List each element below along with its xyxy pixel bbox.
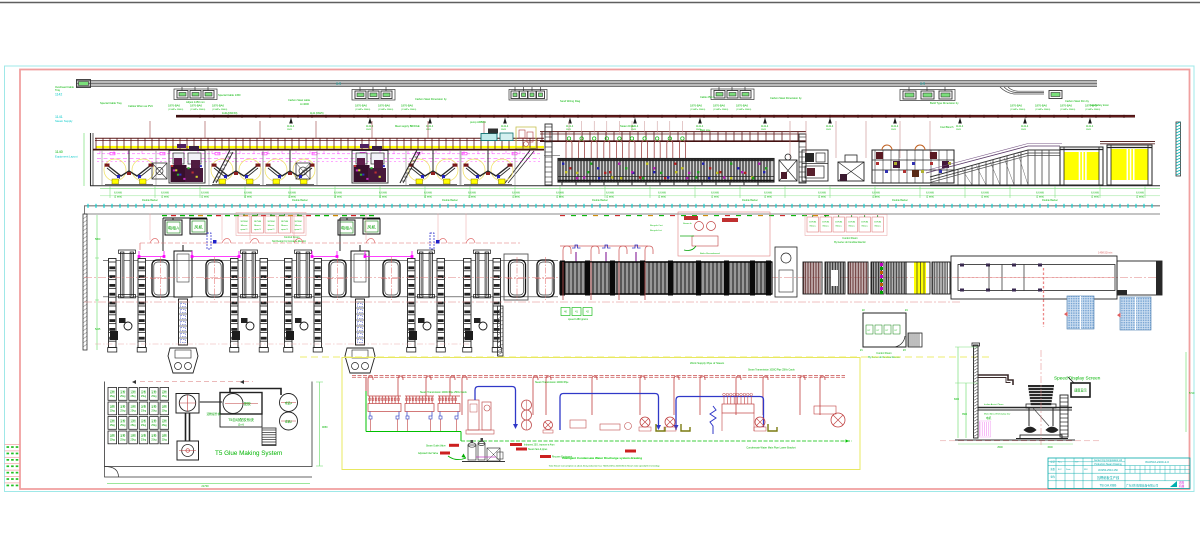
svg-text:(1.5MPa DN40): (1.5MPa DN40) [168, 109, 183, 111]
svg-text:1142: 1142 [336, 83, 342, 86]
svg-text:25kg: 25kg [162, 395, 168, 398]
svg-text:6.6 kW: 6.6 kW [379, 192, 387, 195]
svg-text:淀粉: 淀粉 [131, 434, 137, 438]
svg-text:1141-4: 1141-4 [1021, 125, 1029, 128]
svg-text:(2 sets): (2 sets) [818, 196, 826, 199]
svg-text:5245: 5245 [95, 328, 101, 331]
svg-text:Indepent 25G, improve a 4ton: Indepent 25G, improve a 4ton [524, 444, 555, 447]
svg-text:DN25: DN25 [1086, 129, 1092, 131]
svg-text:Condensate Water Main Pipe Low: Condensate Water Main Pipe Lower Bracket [746, 447, 796, 450]
svg-text:淀粉: 淀粉 [131, 419, 137, 423]
svg-text:25kg: 25kg [151, 424, 157, 427]
svg-text:Double Backer: Double Backer [142, 199, 158, 202]
svg-text:2500: 2500 [997, 446, 1003, 449]
svg-text:9050: 9050 [322, 426, 328, 429]
svg-text:By Gertec do Condtrac Electric: By Gertec do Condtrac Electric [834, 241, 866, 244]
svg-text:spau##: spau## [240, 229, 248, 231]
svg-text:Double Backer: Double Backer [742, 199, 758, 202]
svg-text:Intelligent Condensate Water D: Intelligent Condensate Water Discharge s… [562, 456, 642, 460]
svg-text:1141-4: 1141-4 [696, 125, 704, 128]
svg-text:187584: 187584 [835, 222, 843, 224]
svg-text:Total Steam Consumption at abo: Total Steam Consumption at about 4ton,pr… [549, 464, 660, 467]
svg-text:淀粉: 淀粉 [120, 405, 126, 409]
svg-text:25kg: 25kg [131, 424, 137, 427]
svg-text:1141-4: 1141-4 [366, 125, 374, 128]
svg-text:1876-BA6: 1876-BA6 [168, 104, 180, 108]
svg-text:6.6 kW: 6.6 kW [1091, 192, 1099, 195]
svg-text:187584: 187584 [281, 221, 289, 223]
svg-text:Control Room: Control Room [842, 237, 857, 240]
svg-text:6.6 kW: 6.6 kW [288, 192, 296, 195]
svg-text:Carbon Steel Dim by: Carbon Steel Dim by [1065, 99, 1090, 103]
svg-text:1876-BA6: 1876-BA6 [355, 104, 367, 108]
svg-text:6.6 kW: 6.6 kW [201, 192, 209, 195]
svg-text:W.F: W.F [1084, 469, 1089, 471]
svg-text:淀粉: 淀粉 [141, 434, 147, 438]
svg-text:Cable 250 m: Cable 250 m [700, 95, 715, 99]
svg-text:Double Backer: Double Backer [442, 199, 458, 202]
svg-text:淀粉: 淀粉 [162, 390, 168, 394]
svg-text:Recycle List: Recycle List [650, 229, 662, 232]
svg-text:6.6 kW: 6.6 kW [764, 192, 772, 195]
svg-text:At 4000: At 4000 [300, 102, 309, 106]
svg-text:Production Steam Drawing: Production Steam Drawing [1094, 463, 1122, 466]
svg-text:淀粉: 淀粉 [141, 405, 147, 409]
svg-text:1141-4: 1141-4 [426, 125, 434, 128]
svg-text:Double Backer: Double Backer [892, 199, 908, 202]
svg-text:187584: 187584 [294, 221, 302, 223]
svg-text:6.6 kW: 6.6 kW [556, 192, 564, 195]
svg-text:Steam In: Steam In [683, 222, 693, 225]
svg-text:(1.5MPa DN40): (1.5MPa DN40) [1010, 109, 1025, 111]
svg-text:1876-BA6: 1876-BA6 [401, 104, 413, 108]
svg-text:(2 sets): (2 sets) [201, 196, 209, 199]
svg-text:Moscu: Moscu [295, 225, 302, 227]
svg-text:1876-BA6: 1876-BA6 [190, 104, 202, 108]
svg-text:1876-BA6: 1876-BA6 [690, 104, 702, 108]
svg-text:1141-4: 1141-4 [891, 125, 899, 128]
svg-text:Cool Bench: Cool Bench [940, 125, 954, 129]
svg-text:25kg: 25kg [131, 410, 137, 413]
svg-text:淀粉: 淀粉 [110, 419, 116, 423]
svg-text:电柜A: 电柜A [341, 225, 352, 232]
svg-text:25kg: 25kg [141, 424, 147, 427]
svg-text:Control Room: Control Room [876, 352, 891, 355]
svg-text:Motor Area Working/up low: Motor Area Working/up low [984, 413, 1011, 416]
svg-text:1498.52/min: 1498.52/min [1098, 251, 1113, 255]
svg-text:(2 sets): (2 sets) [1091, 196, 1099, 199]
svg-text:1876-BA6: 1876-BA6 [1085, 104, 1097, 108]
svg-text:(1.5MPa DN40): (1.5MPa DN40) [212, 109, 227, 111]
svg-text:1876-BA6: 1876-BA6 [736, 104, 748, 108]
svg-text:6.6 kW: 6.6 kW [424, 192, 432, 195]
svg-text:Double Backer: Double Backer [1042, 199, 1058, 202]
svg-text:(1.5MPa DN40): (1.5MPa DN40) [713, 109, 728, 111]
svg-text:Gertec City Corporation Ltd: Gertec City Corporation Ltd [1094, 459, 1123, 462]
svg-text:Special Cable 1450: Special Cable 1450 [218, 93, 241, 97]
svg-text:25kg: 25kg [131, 439, 137, 442]
svg-text:6.6 kW: 6.6 kW [658, 192, 666, 195]
svg-text:Build Type Dimension by: Build Type Dimension by [930, 101, 959, 105]
svg-text:1500: 1500 [1047, 446, 1053, 449]
svg-text:25kg: 25kg [120, 410, 126, 413]
svg-text:3500: 3500 [962, 414, 968, 416]
svg-text:Moscu: Moscu [810, 226, 817, 228]
svg-text:(2 sets): (2 sets) [512, 196, 520, 199]
svg-text:25kg: 25kg [151, 395, 157, 398]
svg-text:(1.5MPa DN40): (1.5MPa DN40) [736, 109, 751, 111]
svg-text:21700: 21700 [201, 484, 209, 488]
svg-text:6.6 kW: 6.6 kW [1136, 192, 1144, 195]
svg-text:(2 sets): (2 sets) [334, 196, 342, 199]
svg-text:(1.5MPa DN40): (1.5MPa DN40) [1060, 109, 1075, 111]
svg-text:淀粉: 淀粉 [131, 405, 137, 409]
svg-text:187584: 187584 [267, 221, 275, 223]
svg-text:Control Room: Control Room [284, 236, 299, 239]
svg-text:187584: 187584 [861, 222, 869, 224]
svg-text:(2 sets): (2 sets) [468, 196, 476, 199]
svg-text:25kg: 25kg [131, 395, 137, 398]
svg-text:187584: 187584 [874, 222, 882, 224]
svg-text:1876-BA6: 1876-BA6 [378, 104, 390, 108]
svg-text:淀粉: 淀粉 [151, 434, 157, 438]
svg-text:25kg: 25kg [110, 410, 116, 413]
svg-text:DN25: DN25 [761, 129, 767, 131]
svg-text:(2 sets): (2 sets) [872, 196, 880, 199]
svg-text:淀粉: 淀粉 [120, 390, 126, 394]
svg-text:T5自动配胶系统: T5自动配胶系统 [228, 417, 254, 422]
svg-text:Steam fast & pipes: Steam fast & pipes [528, 448, 548, 451]
svg-text:广东鸿科智能装备有限公司: 广东鸿科智能装备有限公司 [1126, 484, 1159, 488]
svg-text:淀粉: 淀粉 [162, 405, 168, 409]
svg-text:1141-4: 1141-4 [1086, 125, 1094, 128]
svg-text:25kg: 25kg [162, 439, 168, 442]
svg-text:(2 sets): (2 sets) [556, 196, 564, 199]
svg-text:6.6 kW: 6.6 kW [872, 192, 880, 195]
svg-text:1141-4: 1141-4 [826, 125, 834, 128]
svg-text:DN25: DN25 [826, 129, 832, 131]
svg-text:187584: 187584 [822, 222, 830, 224]
svg-text:(2 sets): (2 sets) [764, 196, 772, 199]
svg-text:Incline Assist 75mm: Incline Assist 75mm [984, 403, 1004, 406]
svg-text:Carbon Steel Dimension by: Carbon Steel Dimension by [770, 96, 802, 100]
svg-text:DN25: DN25 [366, 129, 372, 131]
svg-text:187584: 187584 [809, 222, 817, 224]
svg-text:(2 sets): (2 sets) [1136, 196, 1144, 199]
svg-text:25kg: 25kg [141, 410, 147, 413]
svg-text:25kg: 25kg [120, 439, 126, 442]
svg-text:B.C: B.C [1058, 469, 1062, 471]
svg-text:Moscu: Moscu [849, 226, 856, 228]
svg-text:淀粉: 淀粉 [151, 390, 157, 394]
svg-text:速度显示: 速度显示 [1074, 388, 1087, 393]
svg-text:Recycle Cart: Recycle Cart [650, 224, 663, 227]
svg-text:(2 sets): (2 sets) [981, 196, 989, 199]
svg-text:Adjust 1450 mm: Adjust 1450 mm [186, 100, 205, 104]
svg-text:(2m³): (2m³) [238, 423, 244, 427]
svg-text:5800: 5800 [95, 238, 101, 241]
svg-text:Steam Transmission 1000C/Pipe: Steam Transmission 1000C/Pipe 25Kls Card… [748, 369, 795, 372]
svg-text:spau##: spau## [267, 229, 275, 231]
svg-text:成品2: 成品2 [285, 420, 293, 424]
svg-text:(2 sets): (2 sets) [379, 196, 387, 199]
svg-text:1876-BA6: 1876-BA6 [1010, 104, 1022, 108]
svg-text:spau##: spau## [281, 229, 289, 231]
svg-text:(1.5MPa DN40): (1.5MPa DN40) [378, 109, 393, 111]
svg-text:25kg: 25kg [151, 439, 157, 442]
svg-text:成品1: 成品1 [285, 401, 293, 405]
svg-text:淀粉: 淀粉 [131, 390, 137, 394]
svg-text:Adjusted Inlet Valve: Adjusted Inlet Valve [418, 452, 439, 455]
svg-text:Work Supply Pipe of Steam: Work Supply Pipe of Steam [690, 361, 725, 365]
svg-text:1141-4: 1141-4 [956, 125, 964, 128]
svg-text:6.6 kW: 6.6 kW [1036, 192, 1044, 195]
svg-text:1876-BA6: 1876-BA6 [1035, 104, 1047, 108]
svg-text:Double Backer: Double Backer [292, 199, 308, 202]
svg-text:1876-BA6: 1876-BA6 [212, 104, 224, 108]
svg-text:1876-BA6: 1876-BA6 [1060, 104, 1072, 108]
svg-text:Send Wiring Diag: Send Wiring Diag [560, 99, 581, 103]
svg-text:DN25: DN25 [287, 129, 293, 131]
svg-text:Steam Supply: Steam Supply [55, 119, 73, 123]
svg-text:淀粉提升机: 淀粉提升机 [207, 412, 221, 416]
svg-text:6000: 6000 [954, 399, 960, 401]
svg-text:1141 (DN25): 1141 (DN25) [310, 112, 324, 115]
svg-text:淀粉: 淀粉 [120, 434, 126, 438]
svg-text:Cables When as PVC: Cables When as PVC [128, 104, 153, 108]
svg-text:Not Design by Condebe Electric: Not Design by Condebe Electric [272, 240, 307, 243]
svg-text:Steam Outlet Valve: Steam Outlet Valve [426, 445, 446, 448]
svg-text:6.6 kW: 6.6 kW [244, 192, 252, 195]
svg-text:Double Backer: Double Backer [592, 199, 608, 202]
svg-text:Steam Dryer: Steam Dryer [620, 124, 635, 128]
svg-text:Special Cable Tray: Special Cable Tray [100, 101, 122, 105]
svg-text:By Gertec do Condtrac Electric: By Gertec do Condtrac Electric [868, 356, 900, 359]
svg-text:6.6 kW: 6.6 kW [114, 192, 122, 195]
svg-text:Carbon Steel Dimension by: Carbon Steel Dimension by [415, 97, 447, 101]
svg-text:配胶: 配胶 [244, 401, 251, 406]
svg-text:25kg: 25kg [162, 410, 168, 413]
svg-text:pump ADBRA: pump ADBRA [470, 120, 486, 124]
svg-text:Steam Transmission 1000C/Pipe: Steam Transmission 1000C/Pipe 25Kls Card… [420, 391, 467, 394]
svg-text:5710: 5710 [1189, 392, 1195, 395]
svg-text:6.6 kW: 6.6 kW [981, 192, 989, 195]
svg-text:Speed Display Screen: Speed Display Screen [1054, 376, 1101, 381]
svg-text:187584: 187584 [240, 221, 248, 223]
svg-text:Moscu: Moscu [268, 225, 275, 227]
svg-text:DN25: DN25 [956, 129, 962, 131]
svg-text:TB.GA.KBB: TB.GA.KBB [1100, 484, 1117, 488]
svg-text:Moscu: Moscu [823, 226, 830, 228]
svg-text:T5 Glue Making System: T5 Glue Making System [215, 450, 282, 457]
svg-text:淀粉: 淀粉 [141, 419, 147, 423]
svg-text:(2 sets): (2 sets) [711, 196, 719, 199]
svg-text:25kg: 25kg [120, 395, 126, 398]
svg-text:(2 sets): (2 sets) [244, 196, 252, 199]
svg-text:Moscu: Moscu [281, 225, 288, 227]
svg-text:电机: 电机 [986, 416, 992, 420]
svg-text:(1.5MPa DN40): (1.5MPa DN40) [190, 109, 205, 111]
svg-text:6.6 kW: 6.6 kW [512, 192, 520, 195]
svg-text:6.6 kW: 6.6 kW [926, 192, 934, 195]
svg-text:Moscu: Moscu [254, 225, 261, 227]
svg-text:1141-4: 1141-4 [501, 125, 509, 128]
svg-text:(1.5MPa DN40): (1.5MPa DN40) [1085, 109, 1100, 111]
svg-text:1141-4: 1141-4 [287, 125, 295, 128]
svg-text:淀粉: 淀粉 [151, 419, 157, 423]
svg-text:6.6 kW: 6.6 kW [334, 192, 342, 195]
svg-text:1876-BA6: 1876-BA6 [713, 104, 725, 108]
svg-text:1140: 1140 [55, 150, 63, 154]
svg-text:风机: 风机 [367, 224, 376, 231]
svg-text:WJ250-250J-150: WJ250-250J-150 [1098, 468, 1118, 472]
svg-text:(2 sets): (2 sets) [114, 196, 122, 199]
svg-text:25kg: 25kg [110, 424, 116, 427]
svg-text:电柜A: 电柜A [168, 225, 179, 232]
svg-text:淀粉: 淀粉 [151, 405, 157, 409]
svg-text:Steam Transmission 1000C/Pipe: Steam Transmission 1000C/Pipe [535, 381, 569, 384]
svg-text:WJ250J-2200-2-0: WJ250J-2200-2-0 [1145, 460, 1169, 464]
svg-text:25kg: 25kg [141, 395, 147, 398]
svg-text:1141-4: 1141-4 [761, 125, 769, 128]
svg-text:(1.5MPa DN40): (1.5MPa DN40) [690, 109, 705, 111]
svg-text:Date: Date [1066, 468, 1071, 471]
svg-text:spau##: spau## [294, 229, 302, 231]
svg-text:187584: 187584 [254, 221, 262, 223]
svg-text:25kg: 25kg [162, 424, 168, 427]
svg-text:25kg: 25kg [110, 395, 116, 398]
svg-text:6.6 kW: 6.6 kW [818, 192, 826, 195]
svg-text:1142: 1142 [920, 83, 926, 86]
svg-text:6.6 kW: 6.6 kW [468, 192, 476, 195]
svg-text:1142: 1142 [55, 93, 62, 97]
svg-text:Carbon Steel cable: Carbon Steel cable [288, 98, 311, 102]
svg-text:Meet supply BRIDGE: Meet supply BRIDGE [395, 124, 420, 128]
svg-text:25kg: 25kg [141, 439, 147, 442]
svg-text:6.6 kW: 6.6 kW [711, 192, 719, 195]
svg-text:淀粉: 淀粉 [120, 419, 126, 423]
svg-text:机械: 机械 [1179, 484, 1185, 488]
svg-text:25kg: 25kg [120, 424, 126, 427]
svg-text:Equipment Layout: Equipment Layout [55, 155, 78, 159]
svg-text:Moscu: Moscu [875, 226, 882, 228]
svg-text:6.6 kW: 6.6 kW [161, 192, 169, 195]
svg-text:6.6 kW: 6.6 kW [606, 192, 614, 195]
svg-text:(2 sets): (2 sets) [926, 196, 934, 199]
svg-text:淀粉: 淀粉 [110, 390, 116, 394]
svg-text:淀粉: 淀粉 [141, 390, 147, 394]
svg-text:淀粉: 淀粉 [110, 405, 116, 409]
svg-text:风机: 风机 [194, 224, 203, 231]
svg-text:Main Line: Main Line [700, 129, 711, 132]
svg-text:DN25: DN25 [501, 129, 507, 131]
svg-text:DN25: DN25 [891, 129, 897, 131]
svg-text:淀粉: 淀粉 [110, 434, 116, 438]
svg-text:淀粉: 淀粉 [162, 419, 168, 423]
svg-text:187584: 187584 [848, 222, 856, 224]
svg-text:(1.5MPa DN40): (1.5MPa DN40) [355, 109, 370, 111]
svg-text:25kg: 25kg [151, 410, 157, 413]
svg-text:DN25: DN25 [1021, 129, 1027, 131]
svg-text:Moscu: Moscu [241, 225, 248, 227]
svg-text:Moscu: Moscu [836, 226, 843, 228]
svg-text:(2 sets): (2 sets) [161, 196, 169, 199]
svg-text:(2 sets): (2 sets) [658, 196, 666, 199]
svg-text:(1.5MPa DN40): (1.5MPa DN40) [401, 109, 416, 111]
svg-text:Moscu: Moscu [862, 226, 869, 228]
svg-text:speed 1480 grams: speed 1480 grams [568, 318, 589, 321]
svg-text:瓦楞纸板生产线: 瓦楞纸板生产线 [1097, 475, 1120, 480]
svg-text:1141(DN150): 1141(DN150) [222, 111, 238, 115]
svg-text:1141-4: 1141-4 [566, 125, 574, 128]
svg-text:(1.5MPa DN40): (1.5MPa DN40) [1035, 109, 1050, 111]
svg-text:DN25: DN25 [426, 129, 432, 131]
svg-text:25kg: 25kg [110, 439, 116, 442]
svg-text:Boiler Recondensed: Boiler Recondensed [700, 252, 720, 255]
svg-text:淀粉: 淀粉 [162, 434, 168, 438]
svg-text:spau##: spau## [254, 229, 262, 231]
svg-text:(2 sets): (2 sets) [424, 196, 432, 199]
